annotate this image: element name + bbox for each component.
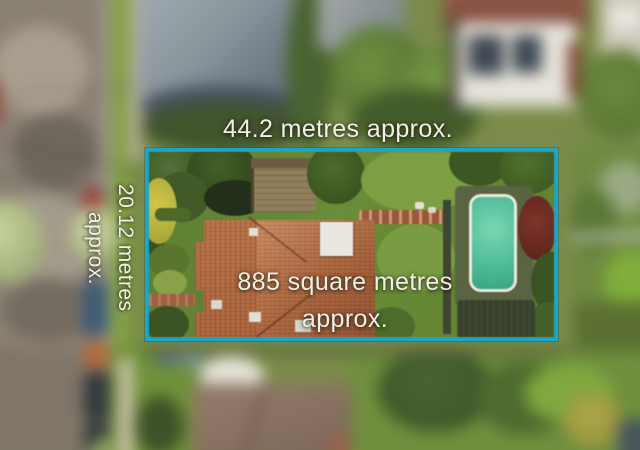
car-dark bbox=[83, 371, 110, 421]
area-measurement-label: 885 square metres approx. bbox=[195, 264, 495, 338]
hedge-row bbox=[142, 347, 567, 356]
frontage-measurement-label: 44.2 metres approx. bbox=[188, 115, 488, 144]
tree bbox=[307, 152, 365, 204]
car-blue bbox=[83, 281, 108, 336]
bush bbox=[149, 306, 189, 337]
tree bbox=[135, 396, 183, 450]
shadow-corner bbox=[618, 419, 640, 450]
tree bbox=[378, 348, 494, 432]
aerial-property-photo: 44.2 metres approx. 20.12 metres approx.… bbox=[0, 0, 640, 450]
skylight bbox=[249, 228, 258, 236]
white-vehicle bbox=[610, 6, 640, 31]
depth-measurement-label: 20.12 metres approx. bbox=[110, 148, 140, 348]
solar-panels bbox=[468, 35, 504, 75]
shed-roof-top bbox=[251, 158, 313, 168]
hedge bbox=[155, 208, 191, 221]
area-label-line1: 885 square metres bbox=[195, 264, 495, 301]
roof-white-section bbox=[320, 222, 353, 256]
bush bbox=[153, 270, 187, 296]
tree bbox=[570, 188, 616, 251]
tree-maroon bbox=[518, 196, 554, 260]
garden-object-white bbox=[428, 207, 436, 213]
garden-object-white bbox=[415, 202, 424, 209]
garden-dark bbox=[574, 302, 640, 352]
solar-panels bbox=[512, 35, 541, 73]
roof-notch bbox=[195, 220, 204, 242]
car-orange bbox=[84, 342, 109, 369]
tree bbox=[578, 50, 640, 139]
tree-yellow bbox=[564, 393, 623, 448]
garden-path bbox=[149, 294, 195, 306]
road-lower bbox=[0, 347, 84, 450]
area-label-line2: approx. bbox=[195, 301, 495, 338]
road-patch bbox=[3, 278, 95, 343]
driveway bbox=[118, 358, 133, 450]
